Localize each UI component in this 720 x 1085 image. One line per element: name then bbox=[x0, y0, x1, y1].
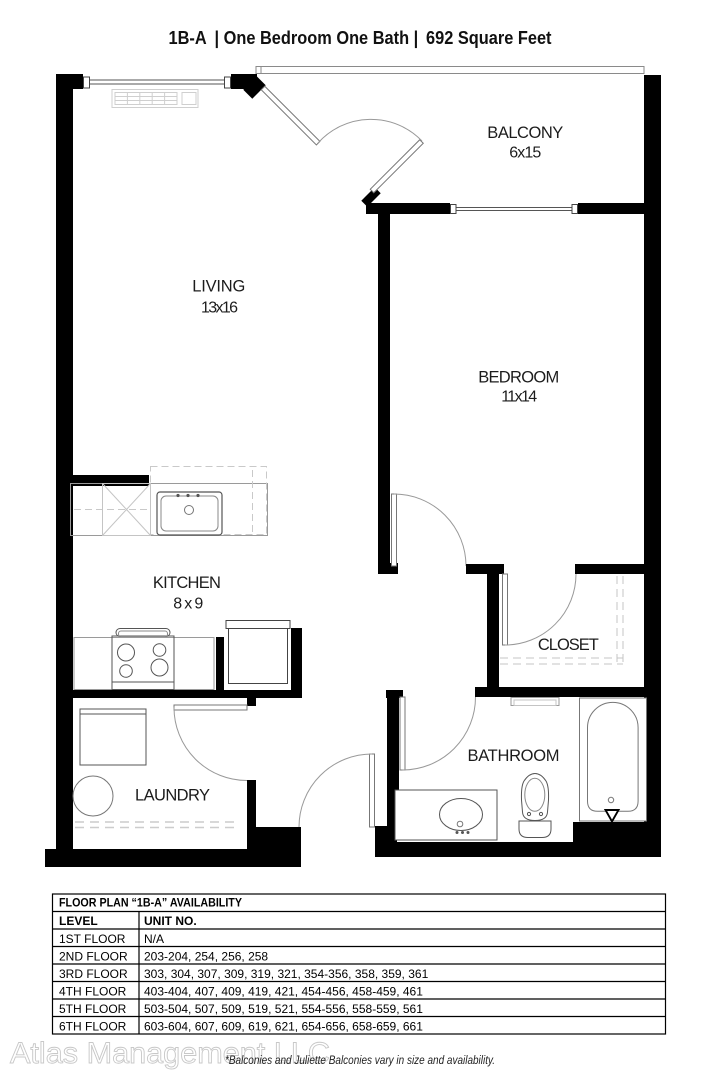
svg-text:203-204, 254, 256, 258: 203-204, 254, 256, 258 bbox=[144, 949, 268, 963]
svg-text:*Balconies and Juliette Balcon: *Balconies and Juliette Balconies vary i… bbox=[225, 1055, 495, 1067]
svg-text:13x16: 13x16 bbox=[201, 299, 238, 316]
svg-text:603-604, 607, 609, 619, 621, 6: 603-604, 607, 609, 619, 621, 654-656, 65… bbox=[144, 1019, 423, 1033]
svg-text:LIVING: LIVING bbox=[192, 278, 245, 296]
svg-text:N/A: N/A bbox=[144, 932, 164, 946]
svg-text:8x9: 8x9 bbox=[173, 595, 203, 612]
svg-text:503-504, 507, 509, 519, 521, 5: 503-504, 507, 509, 519, 521, 554-556, 55… bbox=[144, 1002, 423, 1016]
svg-text:KITCHEN: KITCHEN bbox=[153, 574, 221, 592]
svg-text:1B-A | One Bedroom One Bath |: 1B-A | One Bedroom One Bath | 692 Square… bbox=[169, 28, 552, 48]
svg-text:BEDROOM: BEDROOM bbox=[478, 369, 559, 387]
svg-text:403-404, 407, 409, 419, 421, 4: 403-404, 407, 409, 419, 421, 454-456, 45… bbox=[144, 984, 423, 998]
svg-text:303, 304, 307, 309, 319, 321,: 303, 304, 307, 309, 319, 321, 354-356, 3… bbox=[144, 967, 429, 981]
svg-text:BALCONY: BALCONY bbox=[487, 124, 563, 142]
svg-text:2ND FLOOR: 2ND FLOOR bbox=[59, 949, 128, 963]
svg-text:FLOOR PLAN “1B-A” AVAILABILITY: FLOOR PLAN “1B-A” AVAILABILITY bbox=[59, 896, 242, 910]
svg-text:5TH FLOOR: 5TH FLOOR bbox=[59, 1002, 127, 1016]
svg-text:11x14: 11x14 bbox=[501, 389, 537, 406]
svg-text:LEVEL: LEVEL bbox=[59, 914, 98, 928]
svg-text:6TH FLOOR: 6TH FLOOR bbox=[59, 1019, 127, 1033]
svg-text:LAUNDRY: LAUNDRY bbox=[135, 786, 210, 804]
svg-text:6x15: 6x15 bbox=[509, 145, 541, 162]
svg-text:1ST FLOOR: 1ST FLOOR bbox=[59, 932, 126, 946]
svg-text:3RD FLOOR: 3RD FLOOR bbox=[59, 967, 128, 981]
svg-text:4TH FLOOR: 4TH FLOOR bbox=[59, 984, 127, 998]
svg-text:CLOSET: CLOSET bbox=[538, 636, 599, 654]
svg-text:BATHROOM: BATHROOM bbox=[468, 747, 560, 765]
svg-text:UNIT NO.: UNIT NO. bbox=[144, 914, 197, 928]
